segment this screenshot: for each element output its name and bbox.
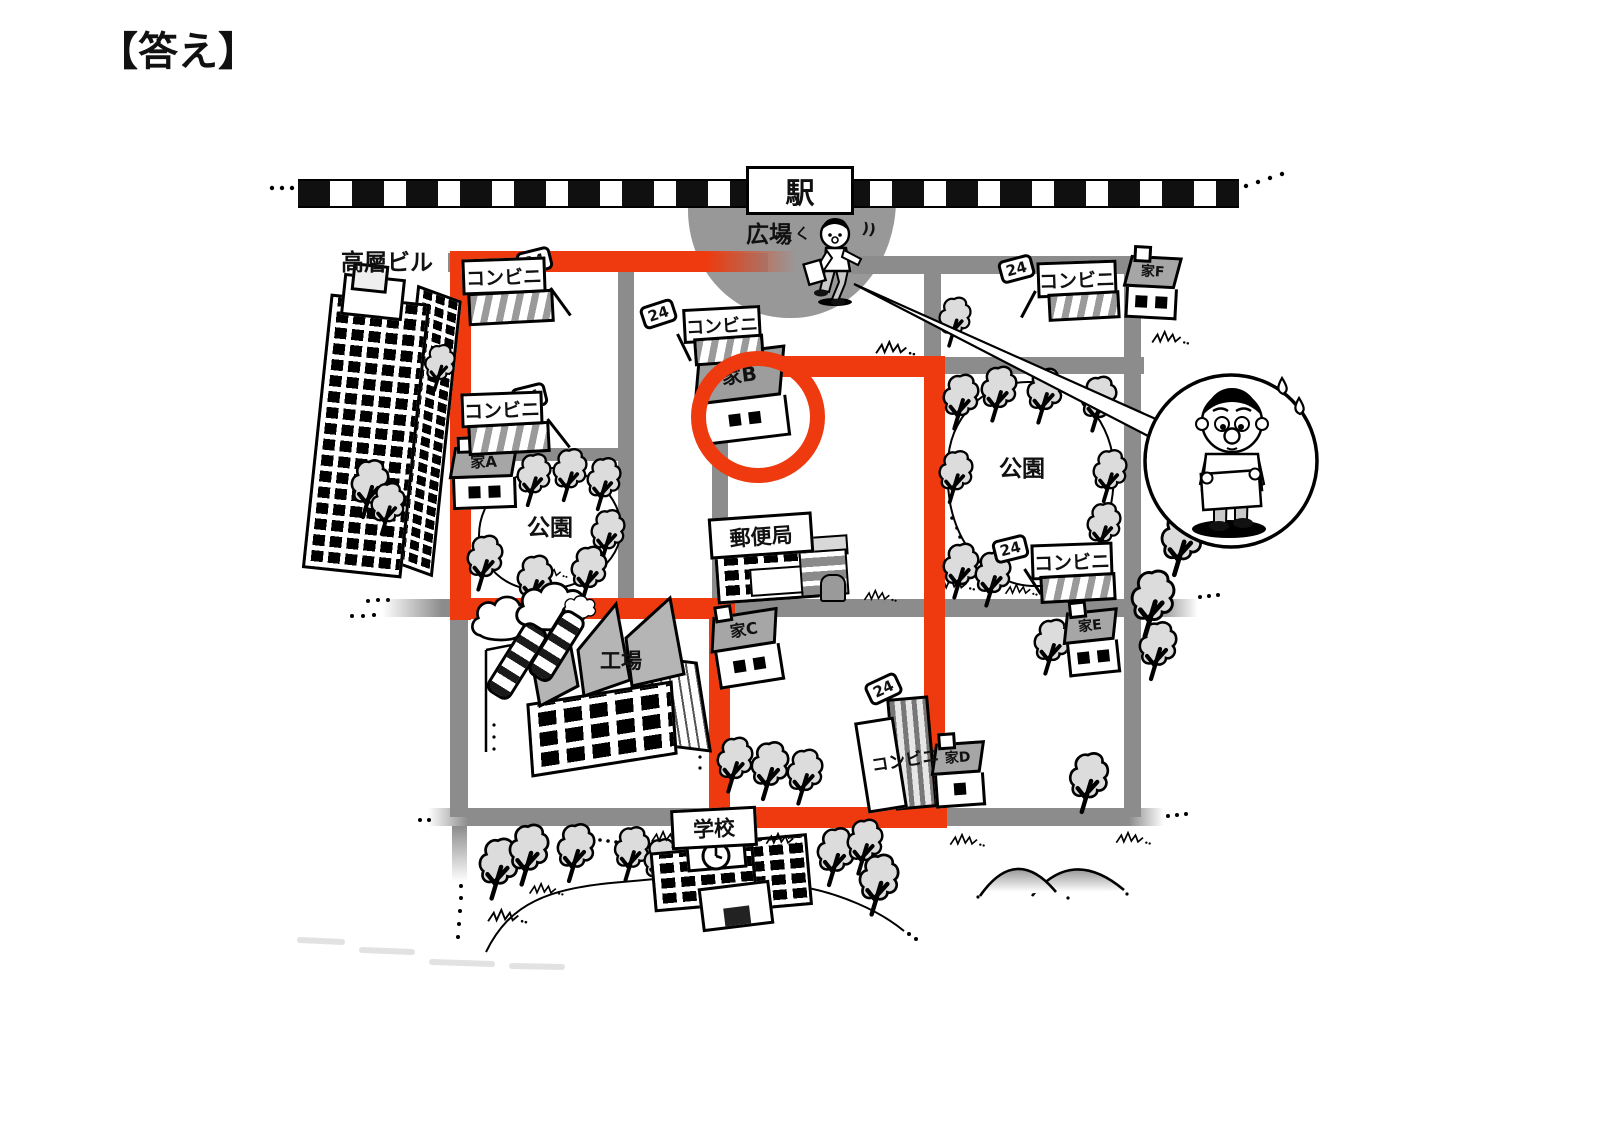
tree-icon [786, 748, 824, 806]
callout-pointer-line [840, 268, 1170, 453]
convenience-awning [467, 289, 555, 326]
tree-icon [750, 740, 790, 802]
house-e-label: 家E [1078, 618, 1103, 634]
grass-icon [486, 908, 528, 925]
house-chimney [1133, 245, 1152, 263]
tree-icon [716, 733, 754, 797]
magnified-person-illustration [1136, 366, 1326, 556]
house-e: 家E [1063, 607, 1122, 677]
tree-icon [424, 340, 456, 396]
answer-heading: 【答え】 [98, 32, 258, 72]
convenience-awning [1039, 572, 1116, 604]
street-left-vertical-tail [452, 826, 467, 882]
house-d: 家D [932, 740, 986, 808]
station-label: 駅 [785, 170, 814, 212]
house-chimney [1068, 600, 1088, 619]
house-chimney [713, 604, 733, 624]
tree-icon [466, 532, 504, 594]
park-left-label: 公園 [527, 517, 573, 540]
walking-motion-mark-right: )) [861, 221, 877, 238]
tree-icon [552, 445, 588, 505]
tree-icon [508, 823, 550, 887]
tree-icon [1092, 446, 1128, 506]
post-box [820, 574, 846, 602]
house-c: 家C [709, 607, 786, 689]
mountains-icon [972, 838, 1132, 900]
answer-map-illustration: 【答え】 [0, 0, 1600, 1146]
grass-icon [528, 882, 564, 897]
tree-icon [1068, 752, 1110, 814]
high-rise-label: 高層ビル [341, 252, 433, 275]
park-right-label: 公園 [999, 458, 1045, 481]
school-entrance [698, 880, 775, 932]
house-d-label: 家D [945, 750, 972, 766]
station-sign: 駅 [746, 166, 854, 215]
walking-motion-mark-left: くく [779, 226, 811, 245]
tree-icon [858, 850, 900, 920]
house-c-label: 家C [729, 620, 759, 640]
post-office-sign: 郵便局 [708, 511, 815, 559]
factory-label: 工場 [600, 650, 623, 672]
post-office-entrance [749, 565, 807, 597]
tree-icon [938, 448, 974, 506]
tree-icon [556, 823, 596, 883]
tree-icon [370, 478, 406, 540]
house-a-label: 家A [470, 454, 497, 470]
grass-icon [862, 589, 898, 603]
answer-circle-house-b [691, 351, 825, 483]
grass-icon [764, 832, 802, 847]
school-doorway [723, 905, 751, 926]
tree-icon [516, 450, 552, 510]
tree-icon [586, 454, 622, 514]
house-chimney [937, 732, 956, 750]
school-sign: 学校 [670, 806, 758, 850]
convenience-awning [467, 421, 551, 456]
